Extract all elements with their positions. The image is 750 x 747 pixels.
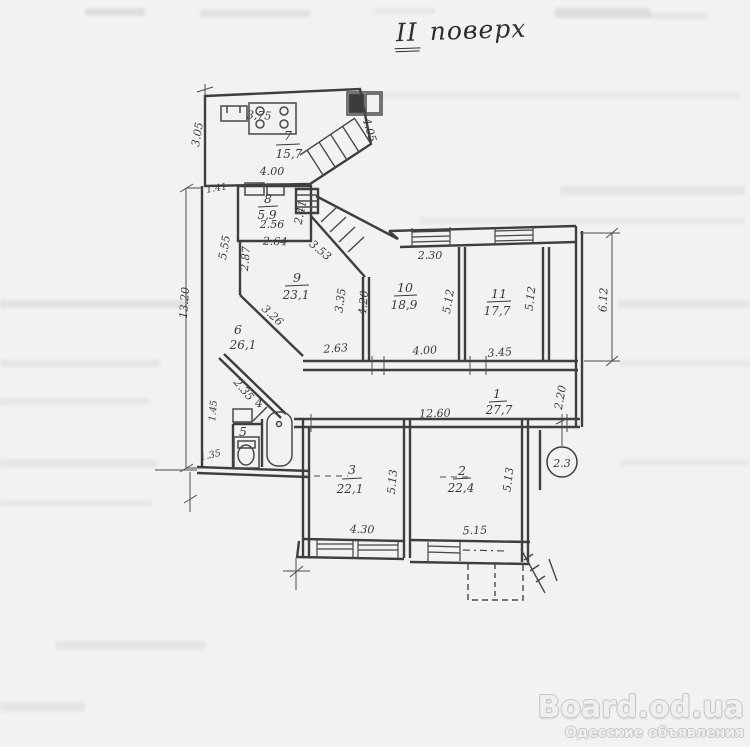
- room10-left-wall: [363, 277, 369, 361]
- window-room2: [428, 542, 460, 561]
- watermark: Board.od.ua Одесские объявления: [538, 693, 744, 741]
- svg-text:23,1: 23,1: [282, 288, 310, 302]
- scanned-floor-plan-page: IIповерх: [0, 0, 750, 747]
- dim-room11-right: 5.12: [523, 286, 539, 312]
- watermark-subtitle: Одесские объявления: [538, 725, 744, 741]
- stair-diagonal-upper: [316, 196, 398, 239]
- dim-room2-bottom: 5.15: [462, 524, 487, 538]
- bathtub-drain: [277, 422, 282, 427]
- dim-corr-seg1: 2.63: [322, 341, 348, 356]
- svg-text:7: 7: [284, 128, 292, 143]
- dim-room10-window: 2.30: [417, 249, 443, 262]
- dim-room3-height: 5.13: [385, 469, 400, 495]
- svg-text:9: 9: [293, 270, 301, 285]
- room3-left-wall: [303, 419, 309, 558]
- dim-room9-left1: 5.55: [216, 234, 233, 260]
- dim-room8-width: 2.56: [259, 218, 285, 231]
- room11-right-wall: [543, 247, 549, 361]
- dim-room10-left1: 3.35: [332, 287, 348, 313]
- floor-plan-drawing: 715,7 85,9 923,1 626,1 1018,9 1117,7 127…: [0, 0, 750, 747]
- circled-note: 2.3: [547, 447, 577, 477]
- svg-text:22,1: 22,1: [336, 482, 364, 496]
- dim-room9-diag: 3.26: [259, 302, 286, 328]
- svg-text:22,4: 22,4: [447, 481, 475, 495]
- left-dim-line: [180, 184, 202, 472]
- room-label-11: 1117,7: [484, 286, 511, 318]
- diagonal-stairs-icon: [321, 207, 364, 252]
- window-room3-b: [358, 541, 398, 558]
- svg-text:10: 10: [397, 280, 413, 295]
- room-label-4: 4: [254, 395, 263, 410]
- window-room3-a: [317, 540, 353, 557]
- room-label-5: 5: [239, 424, 247, 439]
- svg-text:5: 5: [239, 424, 247, 439]
- top-corner-ticks: [197, 84, 213, 96]
- dim-room7-top: 3,75: [247, 108, 272, 122]
- room10-11-divider: [459, 247, 465, 361]
- dim-stairs-diag: 3.53: [307, 237, 334, 263]
- svg-text:2: 2: [457, 463, 466, 478]
- porch: [468, 549, 557, 600]
- dim-room10-right: 5.12: [440, 288, 457, 314]
- room2-3-divider: [404, 419, 410, 558]
- room-label-3: 322,1: [336, 462, 364, 496]
- dim-room8-right: 2.41: [291, 199, 309, 227]
- svg-text:26,1: 26,1: [229, 338, 257, 352]
- dim-corr-length: 12.60: [419, 406, 451, 420]
- dim-corr-seg2: 4.00: [411, 343, 437, 357]
- svg-text:1: 1: [493, 386, 501, 401]
- room2-right-wall: [522, 419, 528, 562]
- dim-corr-seg3: 3.45: [487, 345, 512, 360]
- room-label-6: 626,1: [229, 322, 257, 352]
- dash-dot-line: [463, 550, 506, 551]
- svg-text:3: 3: [348, 462, 356, 477]
- corridor-bottom-wall: [294, 419, 580, 427]
- dim-room8-width2: 2.64: [262, 235, 288, 249]
- svg-text:4: 4: [254, 395, 263, 410]
- dim-room3-bottom: 4.30: [349, 523, 375, 537]
- right-outer-wall: [576, 226, 582, 427]
- washbasin-icon: [233, 409, 252, 422]
- watermark-brand: Board.od.ua: [538, 693, 744, 723]
- circled-note-value: 2.3: [552, 457, 571, 470]
- dim-left-height: 13.20: [177, 287, 192, 319]
- svg-text:15,7: 15,7: [276, 147, 303, 161]
- room-label-10: 1018,9: [391, 280, 418, 312]
- dim-corr-width: 2.20: [552, 384, 569, 411]
- room-label-7: 715,7: [276, 128, 303, 161]
- svg-text:17,7: 17,7: [484, 304, 511, 318]
- dim-bath-left: 1.45: [207, 400, 220, 422]
- dim-right-height: 6.12: [596, 287, 610, 312]
- svg-text:8: 8: [264, 191, 272, 206]
- dim-room9-left2: 2.87: [238, 246, 253, 273]
- room-label-2: 222,4: [447, 463, 475, 495]
- room-label-1: 127,7: [485, 386, 513, 417]
- bath-left-ext: [155, 470, 197, 512]
- room-label-9: 923,1: [282, 270, 310, 302]
- dim-room10-left2: 4.20: [356, 290, 371, 317]
- kitchen-counter-icon: [221, 106, 247, 121]
- svg-text:18,9: 18,9: [391, 298, 418, 312]
- svg-text:6: 6: [234, 322, 242, 337]
- sink-basin-dark: [349, 94, 364, 113]
- bathtub-icon: [267, 412, 292, 466]
- dim-room7-left: 3.05: [189, 121, 206, 147]
- svg-text:11: 11: [491, 286, 507, 301]
- bottom-left-ext: [283, 558, 310, 590]
- dim-bath-diag: 2.35: [230, 375, 256, 403]
- svg-text:27,7: 27,7: [485, 403, 513, 417]
- dim-small-left: 1.41: [205, 181, 228, 196]
- dimension-lines: [155, 84, 620, 590]
- entry-rail-icon: [521, 549, 557, 593]
- dim-room7-bottom: 4.00: [259, 165, 285, 178]
- corridor-top-wall: [303, 361, 578, 370]
- dim-room2-height: 5.13: [501, 467, 517, 493]
